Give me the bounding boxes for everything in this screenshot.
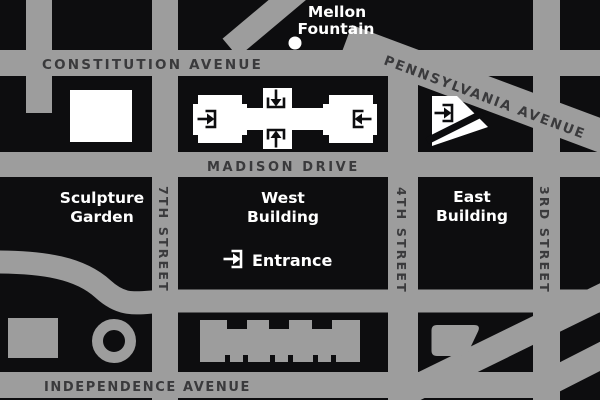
west-building-label-line1: West — [261, 189, 305, 207]
street-label-madison: MADISON DRIVE — [207, 160, 360, 175]
street-label-4th: 4TH STREET — [394, 187, 409, 294]
sculpture-garden-pavilion — [70, 90, 132, 142]
gray-building-southwest — [8, 318, 58, 358]
area-map: CONSTITUTION AVENUE PENNSYLVANIA AVENUE … — [0, 0, 600, 400]
street-label-independence: INDEPENDENCE AVENUE — [44, 380, 251, 395]
street-label-7th: 7TH STREET — [156, 186, 171, 293]
notched-building-south — [200, 320, 360, 362]
mellon-label-line1: Mellon — [308, 3, 366, 21]
mellon-label-line2: Fountain — [298, 20, 375, 38]
sculpture-garden-label-line2: Garden — [70, 208, 133, 226]
map-canvas: CONSTITUTION AVENUE PENNSYLVANIA AVENUE … — [0, 0, 600, 400]
west-building-label-line2: Building — [247, 208, 319, 226]
street-label-3rd: 3RD STREET — [537, 186, 552, 294]
mellon-fountain-dot — [289, 37, 302, 50]
entrance-label: Entrance — [252, 251, 333, 270]
west-building-footprint — [193, 88, 377, 149]
sculpture-garden-label-line1: Sculpture — [60, 189, 144, 207]
east-building-label-line2: Building — [436, 207, 508, 225]
east-building-label-line1: East — [453, 188, 491, 206]
street-label-constitution: CONSTITUTION AVENUE — [42, 57, 263, 73]
